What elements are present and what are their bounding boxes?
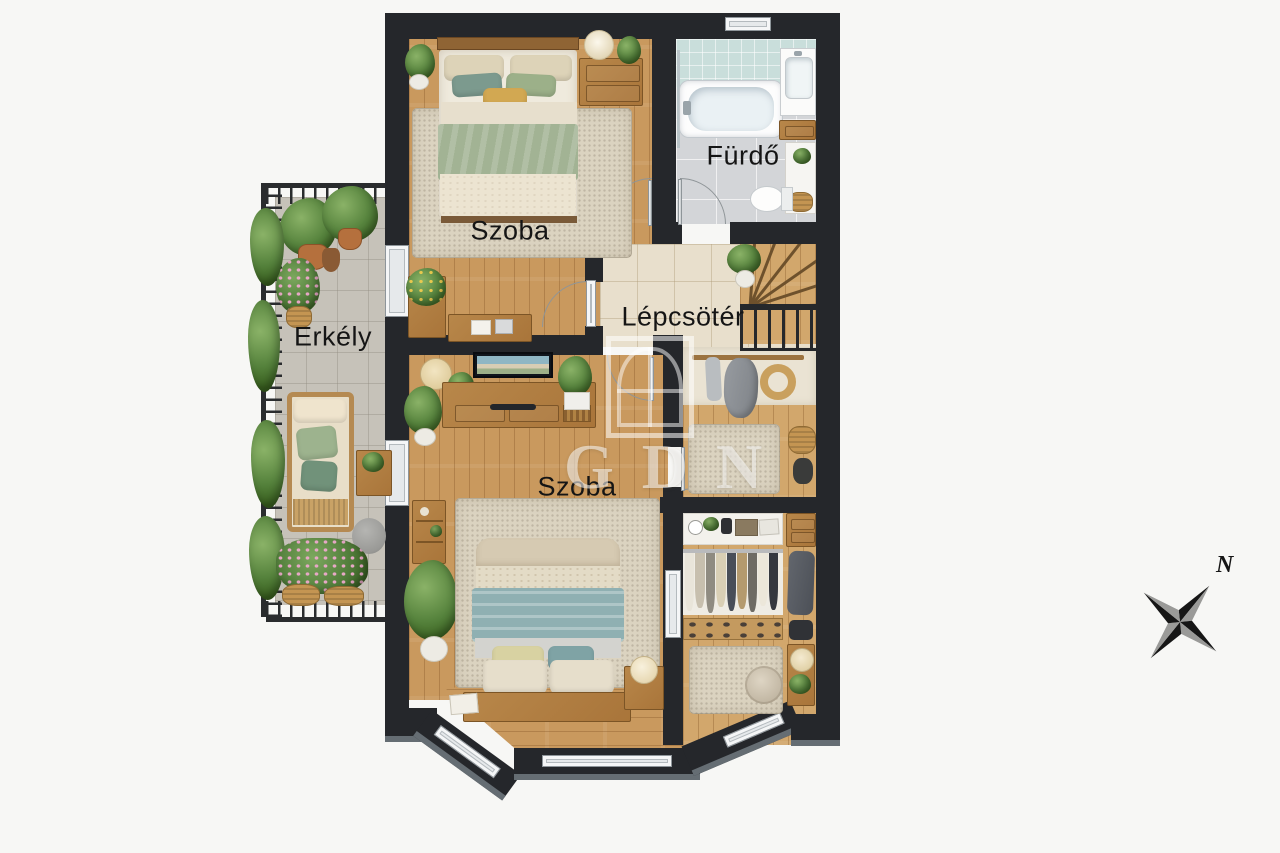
planter-box	[564, 392, 590, 410]
hanging-clothes	[683, 553, 783, 615]
wall-closet-left	[663, 513, 683, 745]
bed-top-headboard	[437, 37, 579, 50]
bed-top-blanket-green	[438, 124, 578, 180]
wall-bathroom-bottom-b	[730, 222, 820, 244]
hanging-scarf	[705, 357, 722, 402]
nook-carpet	[688, 424, 780, 494]
wall-bathroom-bottom-a	[652, 222, 682, 244]
potted-plant	[362, 452, 384, 472]
art-cards	[449, 693, 479, 715]
ball-lamp-icon	[630, 656, 658, 684]
room-label-stairwell: Lépcsötér	[621, 302, 744, 333]
black-bag	[789, 620, 813, 640]
plant-pot	[420, 636, 448, 662]
toilet	[750, 186, 784, 212]
wall-top	[385, 13, 840, 39]
bay-window-center	[542, 755, 672, 767]
bed-main-headboard	[476, 538, 620, 568]
nook-door-leaf	[681, 447, 685, 491]
potted-plant	[617, 36, 641, 64]
stair-railing	[740, 304, 818, 351]
hanging-bag	[322, 248, 340, 272]
terracotta-pot	[338, 228, 362, 250]
wall-closet-top	[660, 497, 816, 513]
soundbar	[490, 404, 536, 410]
balcony-window-1	[385, 245, 409, 317]
corridor-door-jamb	[586, 280, 596, 327]
floorplan-canvas: Szoba Fürdő Lépcsötér	[0, 0, 1280, 853]
closet-lamp-icon	[790, 648, 814, 672]
bed-main-pillow-big-right	[550, 660, 614, 694]
bedroom-main-door-leaf	[650, 357, 654, 401]
bed-main-throw	[476, 566, 620, 590]
room-label-bathroom: Fürdő	[706, 141, 779, 172]
bay-window-left	[434, 725, 501, 778]
bathroom-drawer	[779, 120, 816, 140]
balcony-sofa	[287, 392, 354, 532]
bed-top-duvet	[440, 174, 576, 218]
bed-main-duvet-teal	[472, 588, 624, 642]
bathroom-sink	[780, 48, 816, 116]
wall-bathroom-left	[652, 13, 676, 228]
plant-pot	[409, 74, 429, 90]
room-label-balcony: Erkély	[294, 322, 372, 353]
room-label-bedroom-top: Szoba	[470, 216, 549, 247]
wall-right	[816, 13, 840, 740]
toilet-tank	[781, 187, 793, 211]
bay-wall-bottom	[514, 748, 700, 780]
dark-vase	[793, 458, 813, 484]
plant-pot	[414, 428, 436, 446]
tv-screen	[473, 352, 553, 378]
bed-main-pillow-big-left	[483, 660, 547, 694]
desk	[448, 314, 532, 342]
table-lamp-icon	[584, 30, 614, 60]
bed-main-platform	[463, 692, 631, 722]
plant-pot	[735, 270, 755, 288]
compass-star-icon: N	[1128, 542, 1240, 677]
nightstand-top	[579, 58, 643, 106]
compass-north-label: N	[1215, 552, 1235, 578]
bathroom-door-leaf	[678, 179, 682, 225]
hanging-basket	[788, 426, 816, 454]
planter-basket	[324, 586, 364, 606]
vent-window	[725, 17, 771, 31]
closet-top-shelf	[683, 513, 783, 545]
bedroom-top-door-leaf	[648, 180, 652, 226]
compass-rose: N	[1128, 542, 1240, 677]
wall-corner-bottom-right	[791, 714, 840, 746]
shoe-shelf	[683, 618, 783, 640]
wall-nook-left-a	[663, 347, 683, 447]
potted-plant	[789, 674, 811, 694]
wall-shelf	[412, 500, 446, 564]
pouf	[745, 666, 783, 704]
planter-basket	[282, 584, 320, 606]
closet-pocket-door	[665, 570, 681, 638]
closet-cabinet	[786, 513, 816, 547]
potted-plant	[404, 560, 458, 640]
room-label-bedroom-main: Szoba	[537, 472, 616, 503]
potted-plant	[404, 386, 442, 434]
potted-plant	[558, 356, 592, 396]
balcony-railing-bottom	[266, 601, 389, 622]
garment-bag	[787, 551, 815, 616]
wall-left-upper	[385, 13, 409, 245]
potted-plant	[406, 268, 446, 306]
bathtub	[679, 80, 783, 138]
potted-plant	[793, 148, 811, 164]
straw-bag	[760, 364, 796, 400]
